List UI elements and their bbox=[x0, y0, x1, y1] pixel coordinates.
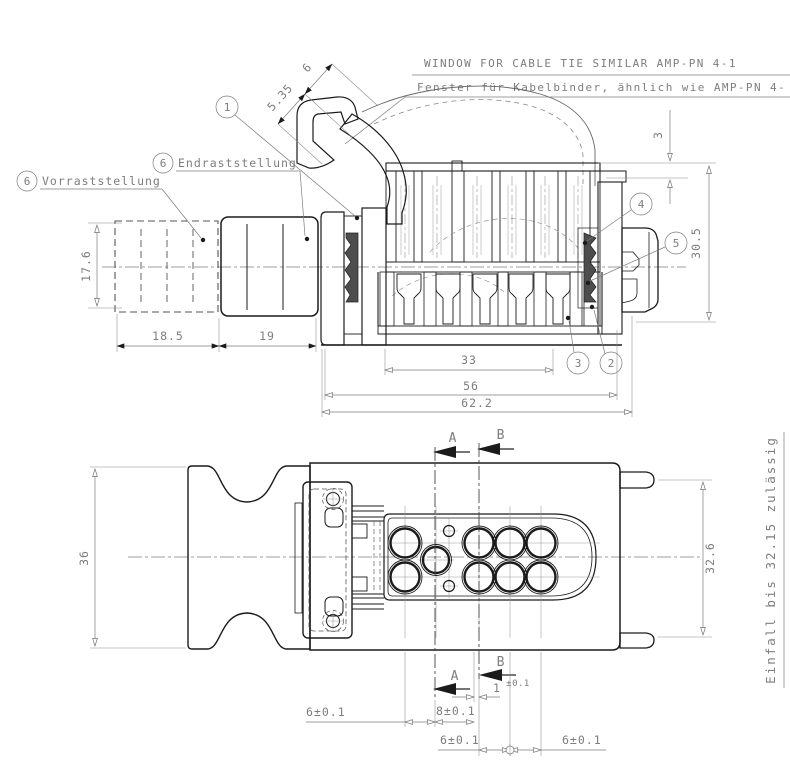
svg-text:19: 19 bbox=[259, 329, 275, 343]
side-section-view: WINDOW FOR CABLE TIE SIMILAR AMP-PN 4-1 … bbox=[17, 57, 790, 417]
svg-text:Einfall bis 32.15 zulässig: Einfall bis 32.15 zulässig bbox=[763, 436, 778, 684]
section-a-top: A bbox=[449, 431, 458, 446]
drawing-canvas: WINDOW FOR CABLE TIE SIMILAR AMP-PN 4-1 … bbox=[0, 0, 790, 776]
dim-3: 3 bbox=[598, 110, 716, 204]
latch-rails bbox=[352, 506, 384, 609]
contact-cavities bbox=[388, 526, 558, 595]
svg-text:3: 3 bbox=[651, 131, 665, 139]
section-b-top: B bbox=[497, 428, 506, 443]
boot-ghost-position bbox=[115, 221, 218, 312]
svg-text:6±0.1: 6±0.1 bbox=[562, 733, 602, 747]
shroud-walls bbox=[386, 171, 600, 262]
mount-pin-top bbox=[620, 472, 654, 488]
balloon-1: 1 bbox=[224, 101, 231, 114]
balloon-2: 2 bbox=[608, 357, 615, 370]
svg-text:6±0.1: 6±0.1 bbox=[440, 733, 480, 747]
svg-text:30.5: 30.5 bbox=[689, 227, 703, 259]
housing-section bbox=[297, 97, 658, 345]
label-endrast: Endraststellung bbox=[178, 156, 297, 170]
dim-535: 5.35 bbox=[264, 81, 296, 114]
svg-text:17.6: 17.6 bbox=[79, 250, 93, 282]
note-en: WINDOW FOR CABLE TIE SIMILAR AMP-PN 4-1 bbox=[424, 57, 737, 70]
end-cap bbox=[622, 228, 658, 312]
plan-boot-spool bbox=[188, 466, 310, 649]
dim-36: 36 bbox=[77, 467, 186, 648]
balloon-6a: 6 bbox=[24, 175, 31, 188]
rear-wall bbox=[362, 208, 386, 345]
section-b-bottom: B bbox=[497, 655, 506, 670]
dim-33-56-622: 33 56 62.2 bbox=[322, 316, 632, 417]
svg-text:32.6: 32.6 bbox=[703, 542, 717, 574]
latch-arm bbox=[297, 97, 406, 224]
svg-text:36: 36 bbox=[77, 550, 91, 566]
balloon-6b: 6 bbox=[160, 157, 167, 170]
dim-326: 32.6 bbox=[658, 480, 717, 637]
svg-text:8±0.1: 8±0.1 bbox=[436, 704, 476, 718]
dim-185-19: 18.5 19 bbox=[117, 314, 316, 352]
svg-text:1: 1 bbox=[493, 681, 501, 695]
plan-body bbox=[310, 463, 620, 650]
engineering-drawing: WINDOW FOR CABLE TIE SIMILAR AMP-PN 4-1 … bbox=[0, 0, 790, 776]
svg-text:±0.1: ±0.1 bbox=[506, 679, 530, 689]
svg-text:33: 33 bbox=[461, 353, 477, 367]
plan-view: A B A B 36 32.6 Einfall bis 32.15 zuläss… bbox=[77, 428, 784, 756]
svg-text:56: 56 bbox=[463, 379, 479, 393]
svg-text:6±0.1: 6±0.1 bbox=[306, 705, 346, 719]
mount-pin-bottom bbox=[620, 633, 654, 648]
einfall-note: Einfall bis 32.15 zulässig bbox=[763, 432, 784, 688]
balloon-4: 4 bbox=[638, 198, 645, 211]
rear-collar bbox=[321, 212, 344, 345]
balloon-3: 3 bbox=[575, 357, 582, 370]
bottom-plate bbox=[378, 326, 602, 334]
section-a-bottom: A bbox=[451, 669, 460, 684]
cable-boot bbox=[221, 217, 318, 316]
balloon-5: 5 bbox=[673, 237, 680, 250]
label-vorrast: Vorraststellung bbox=[42, 174, 161, 188]
cavity-centerlines bbox=[392, 176, 582, 296]
dim-6: 6 bbox=[299, 60, 315, 75]
cable-tie-note: WINDOW FOR CABLE TIE SIMILAR AMP-PN 4-1 … bbox=[345, 57, 790, 144]
right-ledge bbox=[600, 171, 626, 182]
svg-text:18.5: 18.5 bbox=[152, 329, 184, 343]
latch-hook bbox=[297, 97, 358, 168]
shroud-rim bbox=[386, 163, 600, 171]
note-de: Fenster für Kabelbinder, ähnlich wie AMP… bbox=[417, 81, 786, 94]
svg-text:62.2: 62.2 bbox=[461, 396, 493, 410]
rear-radial-seal bbox=[345, 233, 358, 302]
bottom-dims: 1 ±0.1 6±0.1 8±0.1 6±0.1 6±0.1 bbox=[306, 652, 606, 756]
